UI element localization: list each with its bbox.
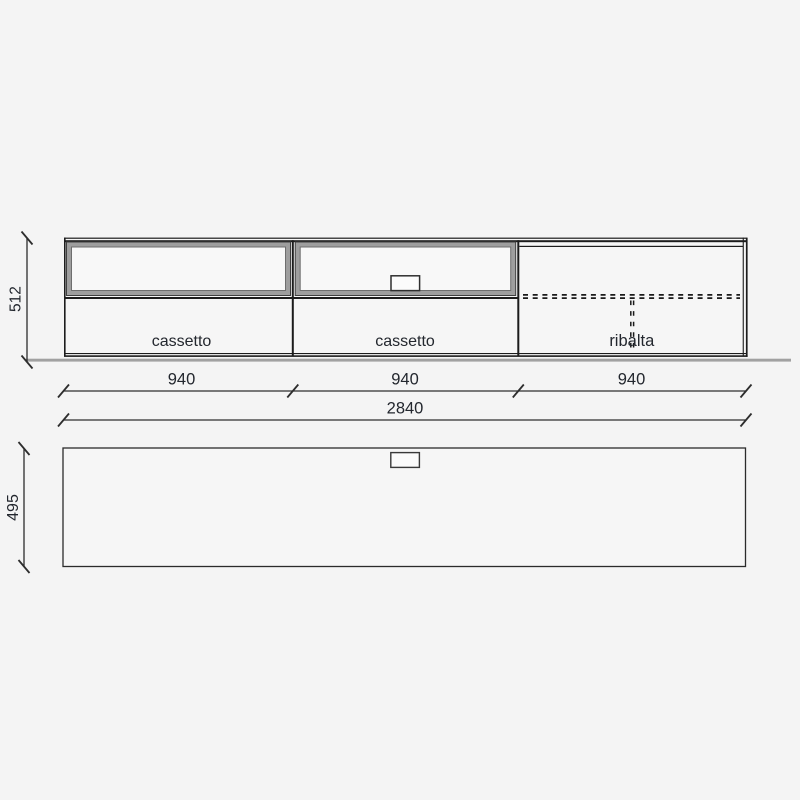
svg-text:940: 940 [618, 371, 646, 389]
svg-text:cassetto: cassetto [375, 333, 435, 350]
svg-text:940: 940 [168, 371, 196, 389]
svg-text:ribalta: ribalta [609, 332, 655, 350]
svg-text:2840: 2840 [387, 400, 424, 418]
svg-text:512: 512 [8, 286, 25, 312]
svg-text:940: 940 [391, 371, 419, 389]
svg-text:cassetto: cassetto [152, 333, 212, 350]
svg-text:495: 495 [5, 494, 22, 521]
